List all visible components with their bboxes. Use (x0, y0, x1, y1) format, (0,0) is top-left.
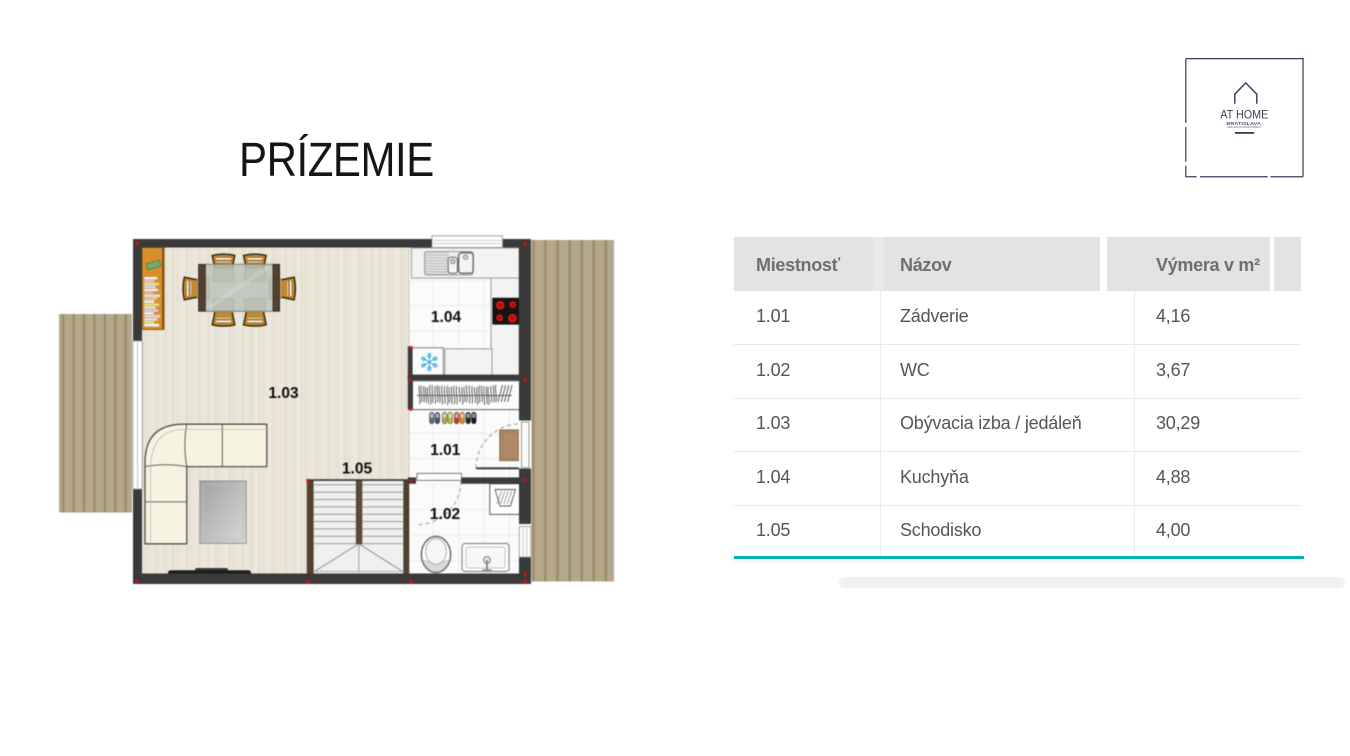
svg-text:1.03: 1.03 (268, 385, 299, 402)
svg-text:1.02: 1.02 (430, 506, 460, 523)
svg-text:1.05: 1.05 (342, 461, 373, 478)
svg-text:1.01: 1.01 (430, 442, 461, 459)
svg-text:1.04: 1.04 (431, 309, 462, 326)
